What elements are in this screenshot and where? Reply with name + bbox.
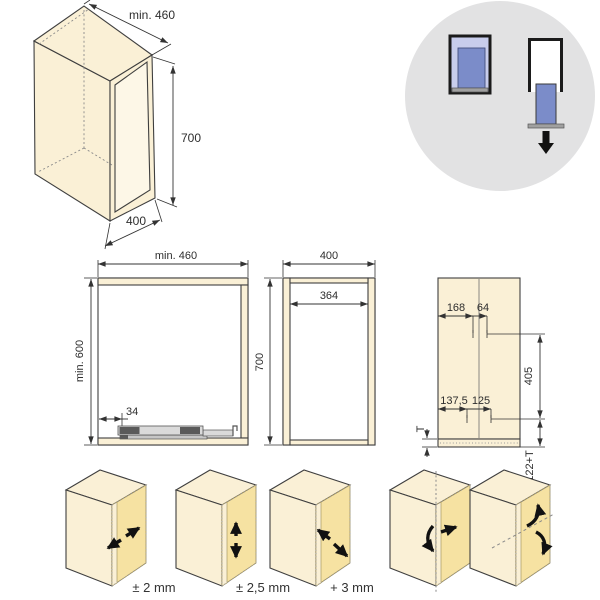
adjustment-label-3: + 3 mm — [330, 580, 374, 595]
side-view-right-panel — [368, 278, 375, 445]
drill-dim-64: 64 — [477, 302, 489, 314]
drill-thickness-dimension: T — [415, 425, 437, 457]
iso-cabinet-drawing: min. 460 700 400 — [34, 0, 201, 249]
side-view-height-dimension: 700 — [254, 278, 282, 445]
adjustment-label-1: ± 2 mm — [132, 580, 175, 595]
adjustment-cabinet-front — [270, 470, 350, 586]
drawer-inserted-icon — [450, 36, 490, 93]
front-view-height-dimension: min. 600 — [74, 278, 97, 445]
side-view-top-panel — [290, 278, 368, 283]
adjustment-cabinet-depth — [66, 470, 146, 586]
front-view-drawing: min. 460 min. 600 34 — [74, 250, 248, 445]
installation-diagram: min. 460 700 400 — [0, 0, 600, 600]
side-view-width-dimension: 400 — [283, 250, 375, 277]
adjustment-cabinet-height — [176, 470, 256, 586]
orientation-badge — [405, 1, 595, 191]
side-view-drawing: 400 364 700 — [254, 250, 375, 445]
badge-circle — [405, 1, 595, 191]
side-view-bottom-panel — [290, 440, 368, 445]
iso-opening — [115, 62, 150, 212]
side-view-width-label: 400 — [320, 250, 338, 262]
drill-dim-T: T — [415, 425, 427, 432]
iso-depth-label: min. 460 — [129, 8, 175, 22]
adjustment-label-2: ± 2,5 mm — [236, 580, 290, 595]
drill-dim-137-5: 137,5 — [440, 395, 468, 407]
iso-height-label: 700 — [181, 131, 201, 145]
side-view-left-panel — [283, 278, 290, 445]
front-view-right-panel — [241, 285, 248, 438]
iso-width-label: 400 — [126, 214, 146, 228]
drill-right-dimensions: 405 122+T — [520, 335, 545, 482]
front-view-width-dimension: min. 460 — [98, 250, 248, 277]
slide-offset-label: 34 — [126, 406, 138, 418]
adjustment-cabinet-rotate — [470, 470, 554, 586]
front-view-width-label: min. 460 — [155, 250, 197, 262]
adjustment-cabinet-tilt — [390, 470, 470, 592]
side-view-inner-label: 364 — [320, 290, 338, 302]
drilling-template-drawing: 168 64 137,5 125 405 122+T — [415, 278, 545, 482]
dimension-height: 700 — [153, 57, 201, 207]
side-view-height-label: 700 — [254, 353, 266, 371]
adjustment-row: ± 2 mm ± 2,5 mm + 3 mm — [66, 470, 554, 595]
drill-dim-405: 405 — [523, 367, 535, 385]
front-view-top-panel — [98, 278, 248, 285]
drill-dim-168: 168 — [447, 302, 465, 314]
diagram-page: min. 460 700 400 — [0, 0, 600, 600]
front-view-height-label: min. 600 — [74, 340, 86, 382]
drill-dim-125: 125 — [472, 395, 490, 407]
